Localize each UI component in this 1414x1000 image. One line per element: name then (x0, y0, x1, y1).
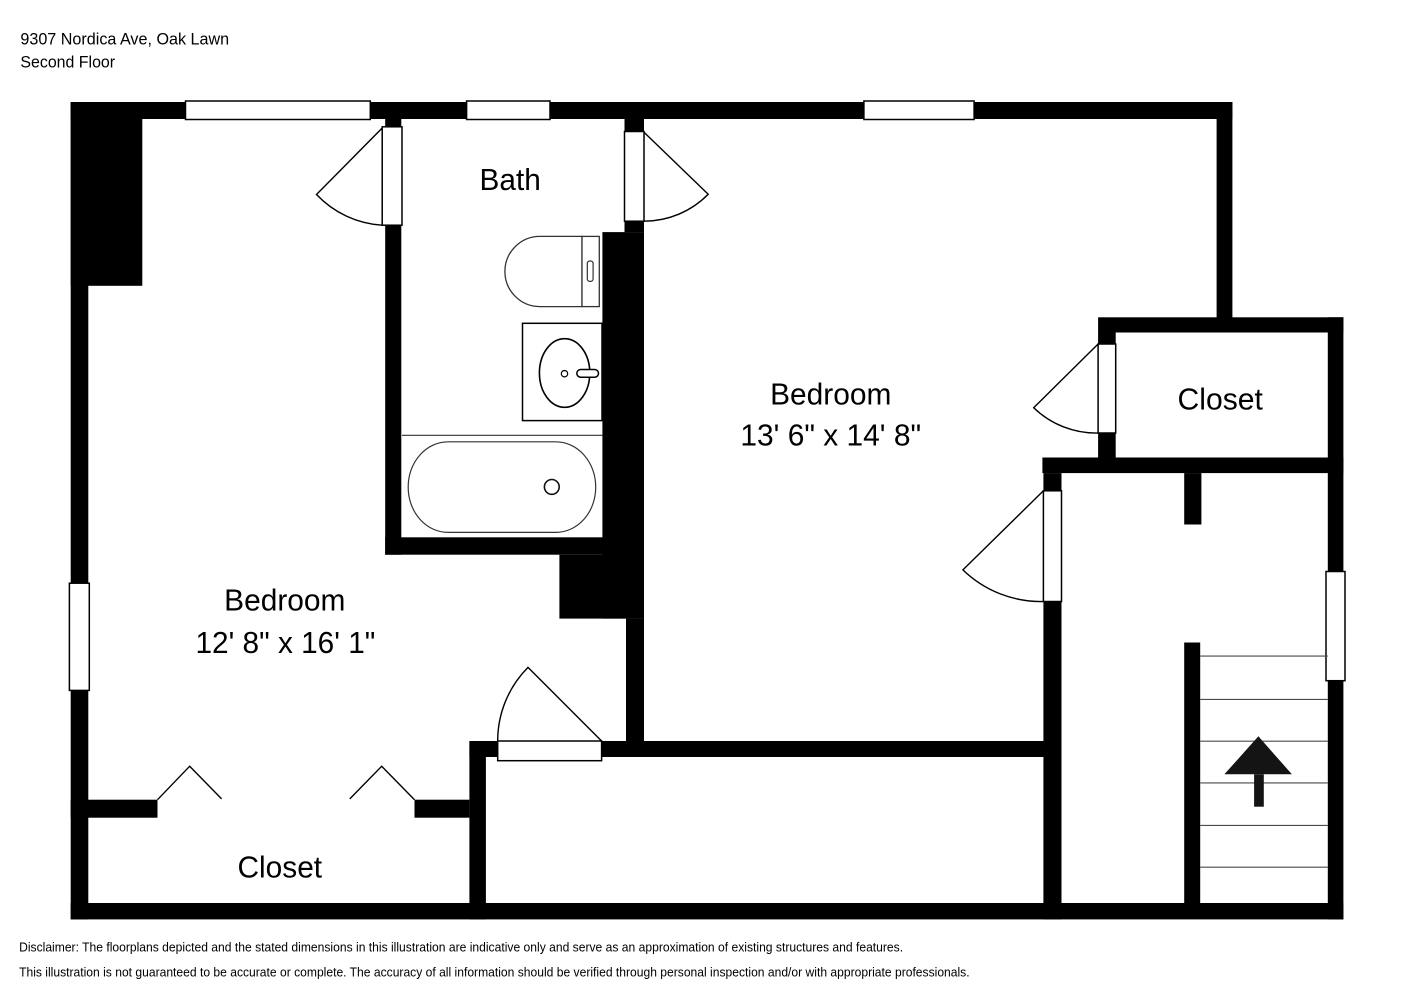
svg-text:Bedroom: Bedroom (224, 583, 345, 618)
svg-text:Closet: Closet (1178, 381, 1264, 416)
svg-text:12' 8" x 16' 1": 12' 8" x 16' 1" (195, 625, 375, 660)
svg-text:Bedroom: Bedroom (770, 377, 891, 412)
svg-text:Disclaimer: The floorplans dep: Disclaimer: The floorplans depicted and … (19, 940, 903, 955)
svg-text:Second Floor: Second Floor (20, 54, 115, 72)
svg-text:13' 6" x 14' 8": 13' 6" x 14' 8" (740, 418, 921, 453)
svg-text:This illustration is not guara: This illustration is not guaranteed to b… (19, 965, 970, 980)
svg-text:Closet: Closet (238, 850, 323, 885)
svg-text:Bath: Bath (480, 162, 541, 197)
svg-text:9307 Nordica Ave, Oak Lawn: 9307 Nordica Ave, Oak Lawn (20, 31, 229, 49)
